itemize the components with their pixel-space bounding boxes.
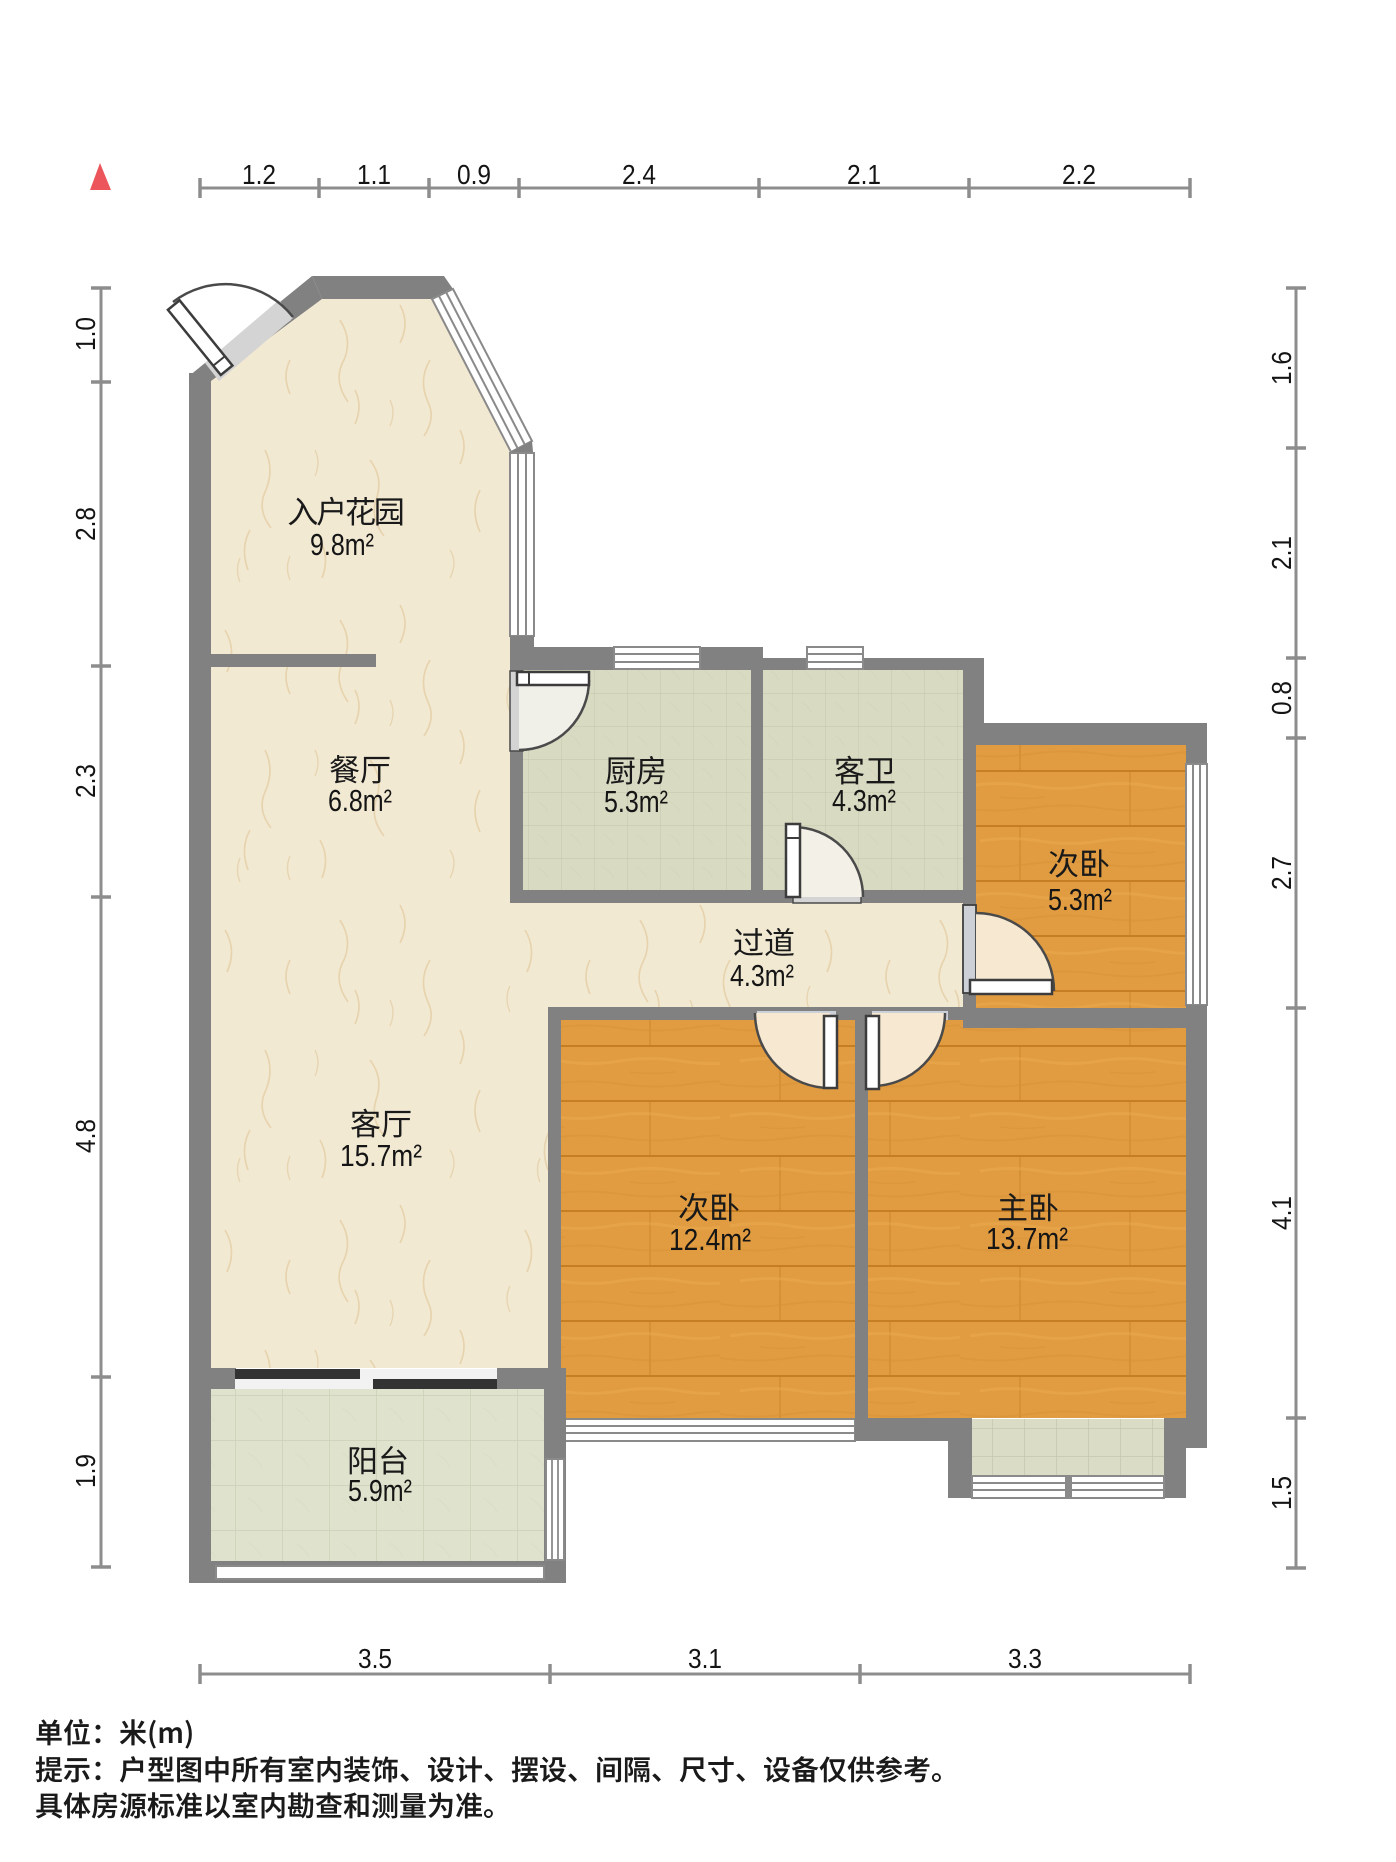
- svg-text:4.3m²: 4.3m²: [832, 783, 896, 818]
- svg-text:3.3: 3.3: [1008, 1643, 1042, 1674]
- svg-text:9.8m²: 9.8m²: [310, 527, 374, 562]
- svg-text:2.2: 2.2: [1062, 159, 1096, 190]
- svg-text:2.3: 2.3: [70, 764, 101, 798]
- svg-text:1.0: 1.0: [70, 317, 101, 351]
- svg-text:12.4m²: 12.4m²: [669, 1222, 751, 1257]
- svg-text:0.8: 0.8: [1266, 681, 1297, 715]
- svg-text:1.2: 1.2: [242, 159, 276, 190]
- svg-text:1.6: 1.6: [1266, 351, 1297, 385]
- svg-text:2.8: 2.8: [70, 507, 101, 541]
- svg-text:5.3m²: 5.3m²: [604, 784, 668, 819]
- svg-text:2.7: 2.7: [1266, 856, 1297, 890]
- svg-text:4.8: 4.8: [70, 1119, 101, 1153]
- svg-text:2.4: 2.4: [622, 159, 656, 190]
- svg-text:1.9: 1.9: [70, 1454, 101, 1488]
- svg-text:1.1: 1.1: [357, 159, 391, 190]
- svg-text:2.1: 2.1: [847, 159, 881, 190]
- svg-text:4.3m²: 4.3m²: [730, 958, 794, 993]
- svg-text:0.9: 0.9: [457, 159, 491, 190]
- svg-text:13.7m²: 13.7m²: [986, 1221, 1068, 1256]
- svg-text:3.1: 3.1: [688, 1643, 722, 1674]
- svg-text:1.5: 1.5: [1266, 1476, 1297, 1510]
- svg-text:15.7m²: 15.7m²: [340, 1138, 422, 1173]
- svg-text:2.1: 2.1: [1266, 536, 1297, 570]
- svg-text:5.9m²: 5.9m²: [348, 1473, 412, 1508]
- svg-text:6.8m²: 6.8m²: [328, 783, 392, 818]
- svg-text:3.5: 3.5: [358, 1643, 392, 1674]
- svg-text:5.3m²: 5.3m²: [1048, 882, 1112, 917]
- svg-text:4.1: 4.1: [1266, 1196, 1297, 1230]
